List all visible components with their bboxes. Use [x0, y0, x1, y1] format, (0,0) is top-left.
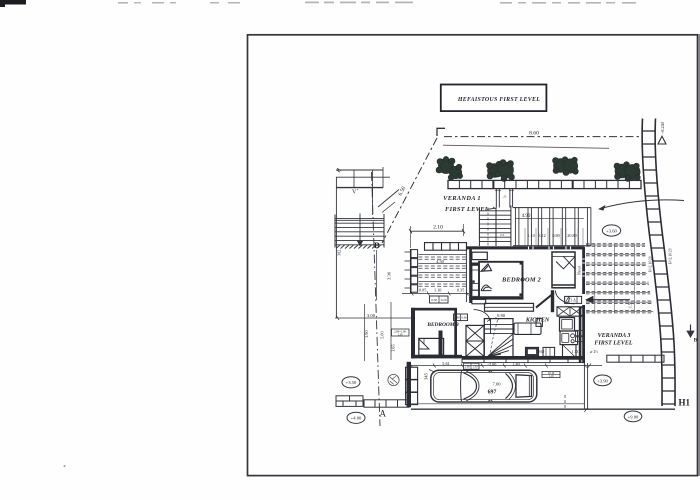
svg-text:0.35: 0.35: [457, 288, 464, 293]
svg-text:4.90: 4.90: [522, 214, 531, 219]
svg-text:VERANDA 1: VERANDA 1: [443, 195, 481, 202]
svg-text:H=2.10/20: H=2.10/20: [669, 248, 673, 264]
svg-text:1.90: 1.90: [364, 330, 369, 338]
svg-text:1.10: 1.10: [548, 374, 554, 378]
svg-text:0.80: 0.80: [552, 233, 559, 238]
svg-text:2.10: 2.10: [433, 225, 443, 231]
svg-text:⌀·2½: ⌀·2½: [590, 350, 598, 354]
svg-text:0.50: 0.50: [431, 298, 437, 302]
svg-text:0.05: 0.05: [419, 288, 426, 293]
svg-text:1.30: 1.30: [397, 333, 403, 337]
svg-text:H1: H1: [679, 398, 691, 408]
svg-text:2.5: 2.5: [500, 233, 505, 237]
svg-text:0.20: 0.20: [441, 298, 447, 302]
svg-text:V´: V´: [352, 190, 358, 196]
svg-text:0.60: 0.60: [461, 316, 467, 320]
svg-text:2.80: 2.80: [465, 365, 471, 369]
svg-text:FIRST LEVEL: FIRST LEVEL: [594, 341, 633, 347]
svg-text:BEDROOM 2: BEDROOM 2: [501, 276, 542, 283]
svg-text:4.50: 4.50: [436, 259, 444, 264]
svg-text:1.50: 1.50: [629, 302, 633, 308]
svg-text:9.60: 9.60: [538, 350, 545, 354]
svg-text:3.00: 3.00: [367, 313, 376, 318]
svg-text:0.80: 0.80: [497, 313, 506, 318]
svg-text:Ντουλ: Ντουλ: [578, 265, 582, 275]
svg-text:8.60: 8.60: [529, 131, 539, 137]
svg-text:FIRST LEVEL: FIRST LEVEL: [445, 206, 489, 213]
svg-text:-3.90: -3.90: [488, 362, 497, 367]
svg-text:697: 697: [488, 389, 497, 395]
svg-text:1·Δ: 1·Δ: [570, 299, 576, 303]
svg-text:+3.60: +3.60: [606, 228, 617, 233]
svg-text:+4.00: +4.00: [351, 416, 362, 421]
svg-text:BEDROOM 3: BEDROOM 3: [426, 322, 459, 328]
svg-text:1.40: 1.40: [512, 361, 519, 366]
svg-text:1.10: 1.10: [434, 288, 441, 293]
svg-text:3.12: 3.12: [538, 233, 545, 238]
svg-text:5.61: 5.61: [442, 361, 450, 366]
svg-text:20.80: 20.80: [567, 233, 576, 238]
svg-text:H=2.10/20: H=2.10/20: [649, 256, 653, 272]
svg-text:+3.90: +3.90: [597, 378, 608, 383]
svg-text:1.65: 1.65: [391, 344, 396, 352]
svg-text:B: B: [374, 240, 380, 250]
svg-text:+3.50: +3.50: [346, 380, 357, 385]
svg-text:3.30: 3.30: [387, 271, 392, 280]
svg-text:+9.00: +9.00: [628, 414, 639, 419]
svg-text:302: 302: [337, 250, 342, 256]
svg-text:345: 345: [424, 372, 429, 380]
svg-text:7.00: 7.00: [492, 382, 501, 387]
svg-text:+8.2Δ0: +8.2Δ0: [660, 122, 665, 134]
svg-text:VERANDA 3: VERANDA 3: [598, 333, 631, 339]
svg-text:1.10: 1.10: [527, 233, 534, 238]
svg-text:.25: .25: [503, 195, 507, 199]
svg-text:1.30: 1.30: [472, 365, 478, 369]
svg-text:A: A: [380, 409, 387, 419]
svg-text:5.00: 5.00: [379, 331, 384, 339]
svg-text:HEFAISTOUS FIRST LEVEL: HEFAISTOUS FIRST LEVEL: [457, 97, 540, 103]
svg-text:1.13: 1.13: [572, 350, 579, 354]
